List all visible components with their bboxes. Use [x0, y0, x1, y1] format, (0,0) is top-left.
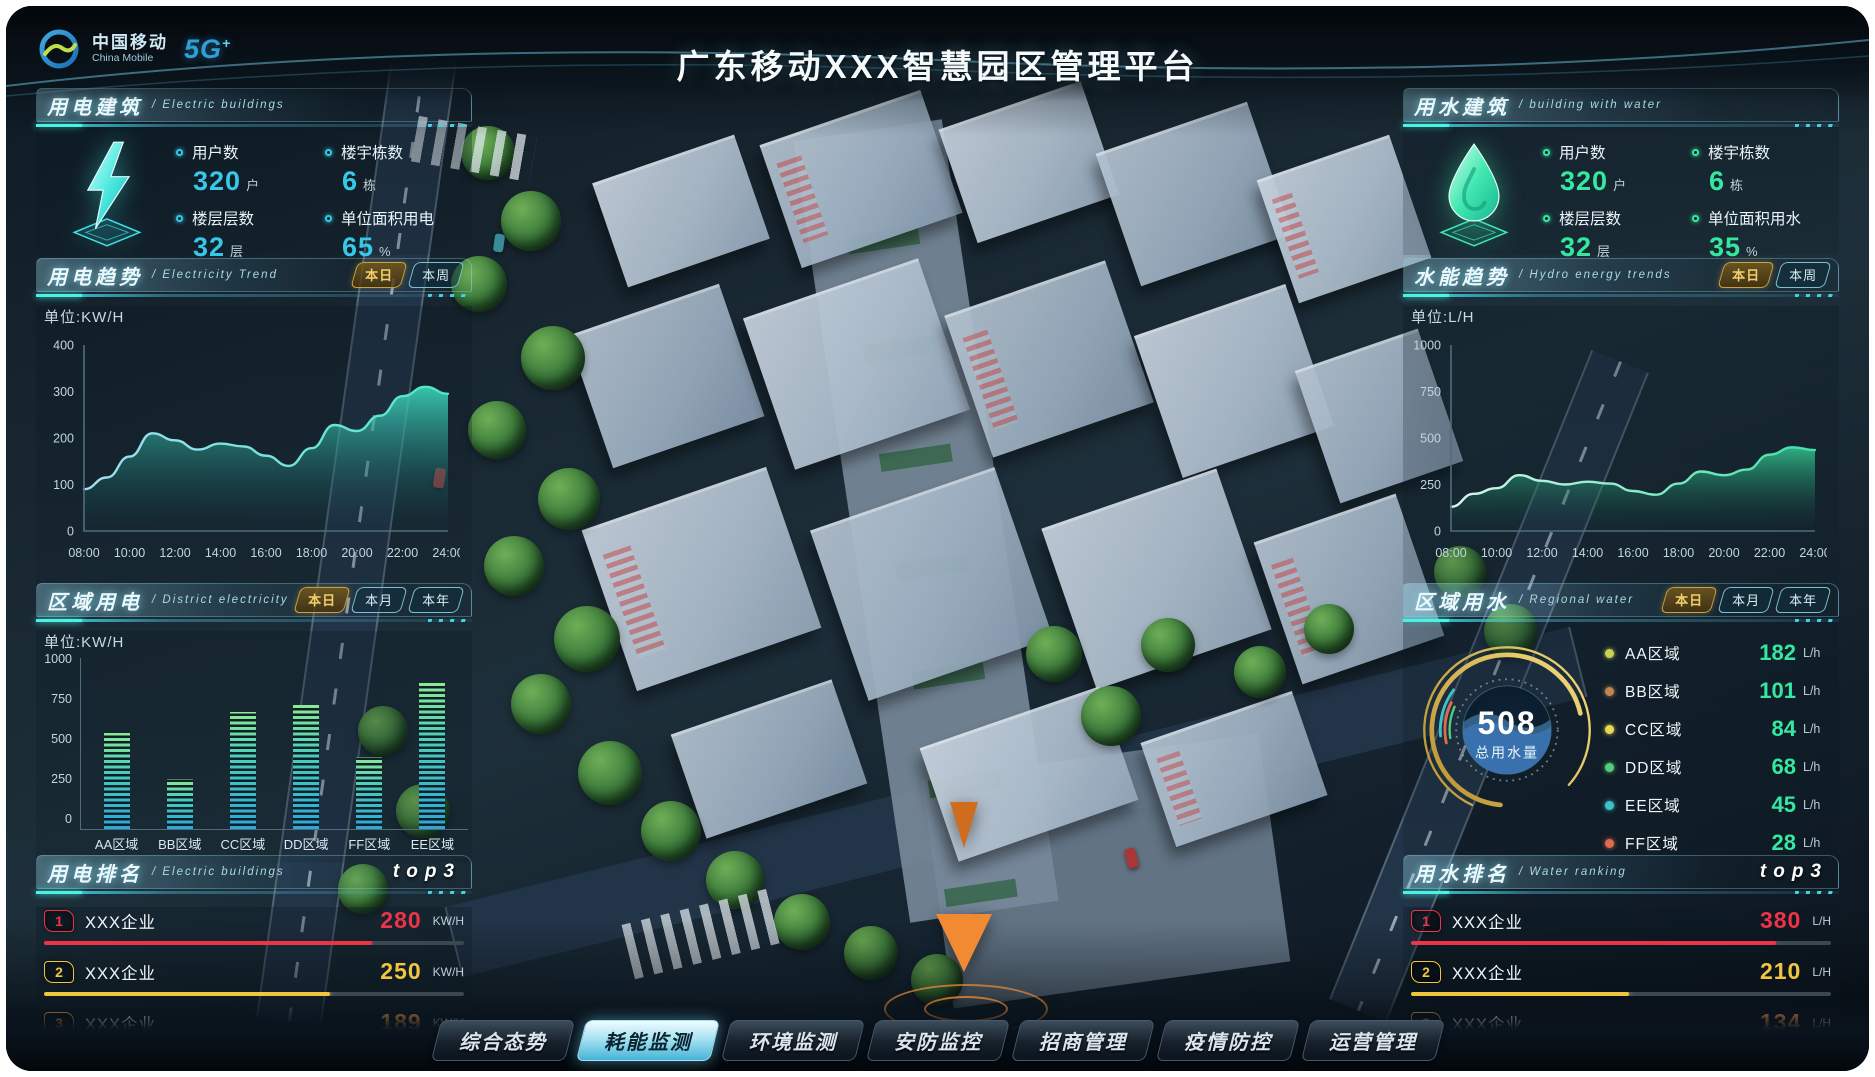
panel-title: 区域用水: [1414, 586, 1510, 615]
legend-value: 28: [1772, 830, 1796, 856]
tree: [521, 326, 585, 390]
unit-label: 单位:KW/H: [44, 306, 472, 327]
stat-unit: 栋: [1730, 178, 1743, 193]
legend-item: AA区域182L/h: [1605, 640, 1829, 666]
rank-progress-fill: [44, 941, 372, 945]
legend-name: CC区域: [1625, 718, 1682, 740]
bottom-navigation: 综合态势耗能监测环境监测安防监控招商管理疫情防控运营管理: [436, 1020, 1440, 1061]
ranking-row-2: 2XXX企业210L/H: [1411, 958, 1831, 996]
stat-bullet-icon: [1543, 149, 1550, 156]
bar-label: DD区域: [284, 834, 329, 853]
stat-label: 楼宇栋数: [341, 141, 403, 163]
bar-AA区域: AA区域: [85, 658, 148, 829]
tree: [578, 741, 642, 805]
legend-dot-icon: [1605, 725, 1614, 734]
legend-item: FF区域28L/h: [1605, 830, 1829, 856]
stat-label: 单位面积用水: [1708, 207, 1801, 229]
panel-subtitle: Regional water: [1519, 594, 1634, 606]
stat-label: 楼层层数: [192, 207, 254, 229]
stat-bullet-icon: [325, 149, 332, 156]
panel-subtitle: Electricity Trend: [152, 269, 278, 281]
tab-today[interactable]: 本日: [350, 262, 407, 288]
stat-label: 用户数: [192, 141, 239, 163]
stat-value: 320: [1560, 166, 1608, 196]
building-block: [568, 284, 765, 468]
building-block: [582, 467, 822, 691]
panel-title: 用水排名: [1414, 858, 1510, 887]
stat-bullet-icon: [1692, 215, 1699, 222]
tree: [844, 926, 898, 980]
nav-item-environment-monitor[interactable]: 环境监测: [720, 1020, 864, 1061]
legend-item: DD区域68L/h: [1605, 754, 1829, 780]
svg-text:250: 250: [1420, 478, 1441, 492]
tab-week[interactable]: 本周: [1774, 262, 1831, 288]
bar-EE区域: EE区域: [401, 658, 464, 829]
rank-unit: KW/H: [433, 965, 464, 979]
svg-text:100: 100: [53, 478, 74, 492]
tree: [641, 801, 701, 861]
tab-today[interactable]: 本日: [1717, 262, 1774, 288]
tree: [774, 894, 830, 950]
svg-text:0: 0: [67, 525, 74, 539]
stat-unit: %: [379, 244, 391, 259]
panel-electric-ranking-header: 用电排名 Electric buildings top3: [36, 855, 472, 889]
panel-electric-trend-header: 用电趋势 Electricity Trend 本日本周: [36, 258, 472, 292]
tree: [501, 191, 561, 251]
svg-text:22:00: 22:00: [387, 546, 418, 560]
stat-users: 用户数320户: [176, 141, 321, 197]
panel-water-trend-header: 水能趋势 Hydro energy trends 本日本周: [1403, 258, 1839, 292]
legend-unit: L/h: [1803, 760, 1829, 774]
company-name: XXX企业: [85, 960, 156, 984]
svg-text:24:00: 24:00: [432, 546, 460, 560]
legend-unit: L/h: [1803, 836, 1829, 850]
tab-year[interactable]: 本年: [407, 587, 464, 613]
nav-item-operations[interactable]: 运营管理: [1300, 1020, 1444, 1061]
panel-electric-building: 用电建筑 Electric buildings 用户数320户楼宇栋数6栋楼层层…: [36, 88, 472, 255]
svg-text:750: 750: [1420, 385, 1441, 399]
company-name: XXX企业: [1452, 909, 1523, 933]
svg-text:18:00: 18:00: [296, 546, 327, 560]
unit-label: 单位:KW/H: [44, 631, 472, 652]
nav-item-security-monitor[interactable]: 安防监控: [865, 1020, 1009, 1061]
stat-value: 6: [1709, 166, 1725, 196]
rank-unit: L/H: [1812, 965, 1831, 979]
svg-text:16:00: 16:00: [1617, 546, 1648, 560]
nav-item-epidemic-control[interactable]: 疫情防控: [1155, 1020, 1299, 1061]
rank-value: 250: [380, 958, 421, 985]
legend-name: DD区域: [1625, 756, 1682, 778]
svg-text:12:00: 12:00: [1526, 546, 1557, 560]
stat-bullet-icon: [1543, 215, 1550, 222]
rank-value: 280: [380, 907, 421, 934]
company-name: XXX企业: [1452, 960, 1523, 984]
stat-users: 用户数320户: [1543, 141, 1688, 197]
rank-unit: KW/H: [433, 914, 464, 928]
rank-badge: 2: [44, 961, 74, 983]
total-water-gauge: 508 总用水量: [1413, 636, 1601, 824]
tree: [511, 674, 571, 734]
gauge-value: 508: [1478, 705, 1537, 741]
page-title: 广东移动XXX智慧园区管理平台: [6, 40, 1869, 88]
rank-progress-track: [1411, 941, 1831, 945]
svg-text:10:00: 10:00: [114, 546, 145, 560]
tab-today[interactable]: 本日: [293, 587, 350, 613]
legend-name: BB区域: [1625, 680, 1681, 702]
panel-electric-trend: 用电趋势 Electricity Trend 本日本周 单位:KW/H 0100…: [36, 258, 472, 584]
legend-dot-icon: [1605, 649, 1614, 658]
tree: [538, 468, 600, 530]
panel-district-electricity-header: 区域用电 District electricity 本日本月本年: [36, 583, 472, 617]
svg-text:20:00: 20:00: [341, 546, 372, 560]
svg-text:12:00: 12:00: [159, 546, 190, 560]
legend-item: EE区域45L/h: [1605, 792, 1829, 818]
company-name: XXX企业: [85, 909, 156, 933]
legend-dot-icon: [1605, 801, 1614, 810]
svg-text:200: 200: [53, 432, 74, 446]
rank-badge: 1: [1411, 910, 1441, 932]
tab-month[interactable]: 本月: [1717, 587, 1774, 613]
stat-unit: 栋: [363, 178, 376, 193]
bar-CC区域: CC区域: [211, 658, 274, 829]
stat-value: 320: [193, 166, 241, 196]
legend-name: FF区域: [1625, 832, 1679, 854]
svg-text:22:00: 22:00: [1754, 546, 1785, 560]
legend-name: AA区域: [1625, 642, 1681, 664]
panel-title: 用电排名: [47, 858, 143, 887]
bar-label: EE区域: [411, 834, 454, 853]
legend-value: 68: [1772, 754, 1796, 780]
tree: [1081, 686, 1141, 746]
legend-dot-icon: [1605, 839, 1614, 848]
tab-week[interactable]: 本周: [407, 262, 464, 288]
tree: [1141, 618, 1195, 672]
bar-label: BB区域: [158, 834, 201, 853]
legend-value: 101: [1759, 678, 1796, 704]
stat-buildings: 楼宇栋数6栋: [325, 141, 470, 197]
tree: [484, 536, 544, 596]
rank-value: 210: [1760, 958, 1801, 985]
svg-text:08:00: 08:00: [68, 546, 99, 560]
svg-text:1000: 1000: [1413, 339, 1441, 353]
stat-label: 单位面积用电: [341, 207, 434, 229]
panel-title: 区域用电: [47, 586, 143, 615]
svg-text:20:00: 20:00: [1708, 546, 1739, 560]
legend-value: 45: [1772, 792, 1796, 818]
svg-text:500: 500: [1420, 432, 1441, 446]
bar-label: AA区域: [95, 834, 138, 853]
stat-unit: 层: [230, 244, 243, 259]
svg-text:10:00: 10:00: [1481, 546, 1512, 560]
building-block: [1140, 691, 1327, 847]
nav-item-energy-monitor[interactable]: 耗能监测: [575, 1020, 719, 1061]
legend-value: 84: [1772, 716, 1796, 742]
rank-badge: 1: [44, 910, 74, 932]
stat-label: 楼宇栋数: [1708, 141, 1770, 163]
bar-label: FF区域: [348, 834, 390, 853]
top3-badge: top3: [393, 861, 461, 883]
regional-water-legend: AA区域182L/hBB区域101L/hCC区域84L/hDD区域68L/hEE…: [1601, 626, 1839, 854]
stat-value: 6: [342, 166, 358, 196]
stat-bullet-icon: [325, 215, 332, 222]
rank-progress-fill: [1411, 941, 1776, 945]
tree: [468, 401, 526, 459]
legend-dot-icon: [1605, 687, 1614, 696]
tree: [1304, 604, 1354, 654]
tree: [1234, 646, 1286, 698]
panel-title: 用电趋势: [47, 261, 143, 290]
panel-district-electricity: 区域用电 District electricity 本日本月本年 单位:KW/H…: [36, 583, 472, 863]
water-trend-tabs: 本日本周: [1721, 262, 1828, 288]
legend-unit: L/h: [1803, 646, 1829, 660]
unit-label: 单位:L/H: [1411, 306, 1839, 327]
water-drop-icon: [1426, 136, 1522, 252]
bar-chart-plot: AA区域BB区域CC区域DD区域FF区域EE区域: [80, 658, 468, 830]
stat-unit: 户: [246, 178, 259, 193]
bar-BB区域: BB区域: [148, 658, 211, 829]
svg-text:16:00: 16:00: [250, 546, 281, 560]
top3-badge: top3: [1760, 861, 1828, 883]
tree: [1026, 626, 1082, 682]
panel-subtitle: Electric buildings: [152, 866, 285, 878]
rank-progress-track: [44, 941, 464, 945]
rank-value: 380: [1760, 907, 1801, 934]
dashboard-stage: 中国移动 China Mobile 5G+ 广东移动XXX智慧园区管理平台 用电…: [6, 6, 1869, 1071]
panel-regional-water: 区域用水 Regional water 本日本月本年: [1403, 583, 1839, 854]
stat-unit-area-electricity: 单位面积用电65%: [325, 207, 470, 263]
stat-bullet-icon: [1692, 149, 1699, 156]
stat-unit-area-water: 单位面积用水35%: [1692, 207, 1837, 263]
stat-bullet-icon: [176, 149, 183, 156]
stat-bullet-icon: [176, 215, 183, 222]
district-electricity-chart: 10007505002500AA区域BB区域CC区域DD区域FF区域EE区域: [38, 658, 468, 830]
bar-chart-y-axis: 10007505002500: [38, 653, 80, 825]
stat-label: 用户数: [1559, 141, 1606, 163]
ranking-row-1: 1XXX企业280KW/H: [44, 907, 464, 945]
tab-month[interactable]: 本月: [350, 587, 407, 613]
water-trend-chart: 0250500750100008:0010:0012:0014:0016:001…: [1403, 329, 1827, 567]
stat-unit: 户: [1613, 178, 1626, 193]
bar-FF区域: FF区域: [338, 658, 401, 829]
legend-item: CC区域84L/h: [1605, 716, 1829, 742]
panel-subtitle: Water ranking: [1519, 866, 1627, 878]
legend-dot-icon: [1605, 763, 1614, 772]
panel-subtitle: District electricity: [152, 594, 289, 606]
stat-unit: 层: [1597, 244, 1610, 259]
rank-unit: L/H: [1812, 914, 1831, 928]
svg-text:300: 300: [53, 385, 74, 399]
stat-floors: 楼层层数32层: [1543, 207, 1688, 263]
svg-text:14:00: 14:00: [1572, 546, 1603, 560]
location-marker-icon[interactable]: [936, 914, 992, 972]
svg-text:14:00: 14:00: [205, 546, 236, 560]
building-block: [939, 81, 1120, 243]
district-electricity-tabs: 本日本月本年: [297, 587, 461, 613]
legend-unit: L/h: [1803, 722, 1829, 736]
stat-unit: %: [1746, 244, 1758, 259]
regional-water-tabs: 本日本月本年: [1664, 587, 1828, 613]
lightning-bolt-icon: [59, 136, 155, 252]
panel-subtitle: Hydro energy trends: [1519, 269, 1672, 281]
stat-buildings: 楼宇栋数6栋: [1692, 141, 1837, 197]
stat-label: 楼层层数: [1559, 207, 1621, 229]
bar-DD区域: DD区域: [275, 658, 338, 829]
nav-item-overview[interactable]: 综合态势: [430, 1020, 574, 1061]
legend-item: BB区域101L/h: [1605, 678, 1829, 704]
legend-unit: L/h: [1803, 684, 1829, 698]
panel-water-building: 用水建筑 building with water 用户数320户楼宇栋数6栋楼层…: [1403, 88, 1839, 255]
panel-regional-water-header: 区域用水 Regional water 本日本月本年: [1403, 583, 1839, 617]
gauge-label: 总用水量: [1475, 744, 1539, 760]
svg-text:18:00: 18:00: [1663, 546, 1694, 560]
bar-label: CC区域: [221, 834, 266, 853]
rank-badge: 2: [1411, 961, 1441, 983]
tab-today[interactable]: 本日: [1660, 587, 1717, 613]
svg-text:0: 0: [1434, 525, 1441, 539]
ranking-row-2: 2XXX企业250KW/H: [44, 958, 464, 996]
legend-name: EE区域: [1625, 794, 1681, 816]
nav-item-investment[interactable]: 招商管理: [1010, 1020, 1154, 1061]
electric-trend-chart: 010020030040008:0010:0012:0014:0016:0018…: [36, 329, 460, 567]
panel-title: 水能趋势: [1414, 261, 1510, 290]
building-block: [592, 135, 770, 288]
svg-text:24:00: 24:00: [1799, 546, 1827, 560]
svg-text:400: 400: [53, 339, 74, 353]
panel-water-ranking-header: 用水排名 Water ranking top3: [1403, 855, 1839, 889]
svg-text:08:00: 08:00: [1435, 546, 1466, 560]
car: [493, 233, 505, 252]
electric-trend-tabs: 本日本周: [354, 262, 461, 288]
tab-year[interactable]: 本年: [1774, 587, 1831, 613]
legend-unit: L/h: [1803, 798, 1829, 812]
ranking-row-1: 1XXX企业380L/H: [1411, 907, 1831, 945]
panel-water-trend: 水能趋势 Hydro energy trends 本日本周 单位:L/H 025…: [1403, 258, 1839, 584]
legend-value: 182: [1759, 640, 1796, 666]
stat-floors: 楼层层数32层: [176, 207, 321, 263]
tree: [554, 606, 620, 672]
